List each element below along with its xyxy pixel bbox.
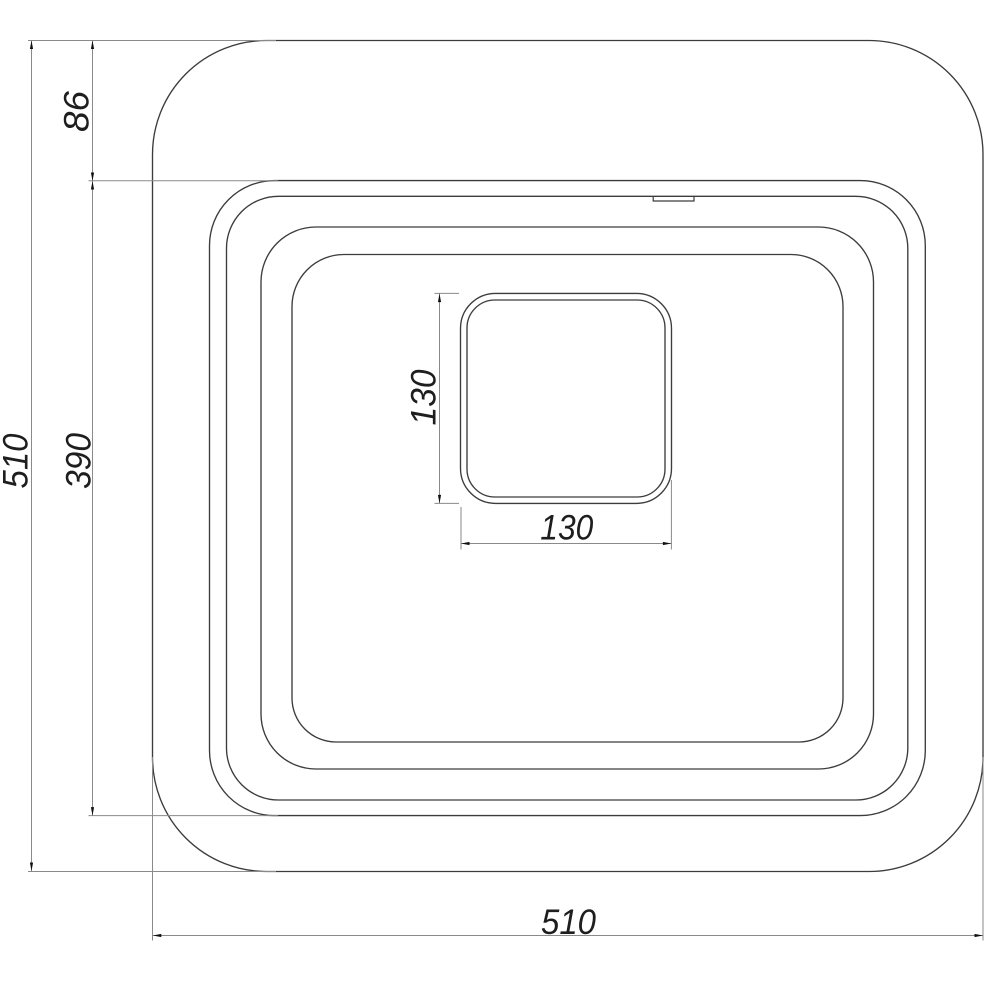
svg-text:86: 86 xyxy=(57,91,97,132)
svg-text:510: 510 xyxy=(541,902,596,942)
svg-text:390: 390 xyxy=(59,433,99,489)
svg-text:510: 510 xyxy=(0,433,36,488)
svg-text:130: 130 xyxy=(404,369,444,425)
svg-text:130: 130 xyxy=(540,508,593,548)
